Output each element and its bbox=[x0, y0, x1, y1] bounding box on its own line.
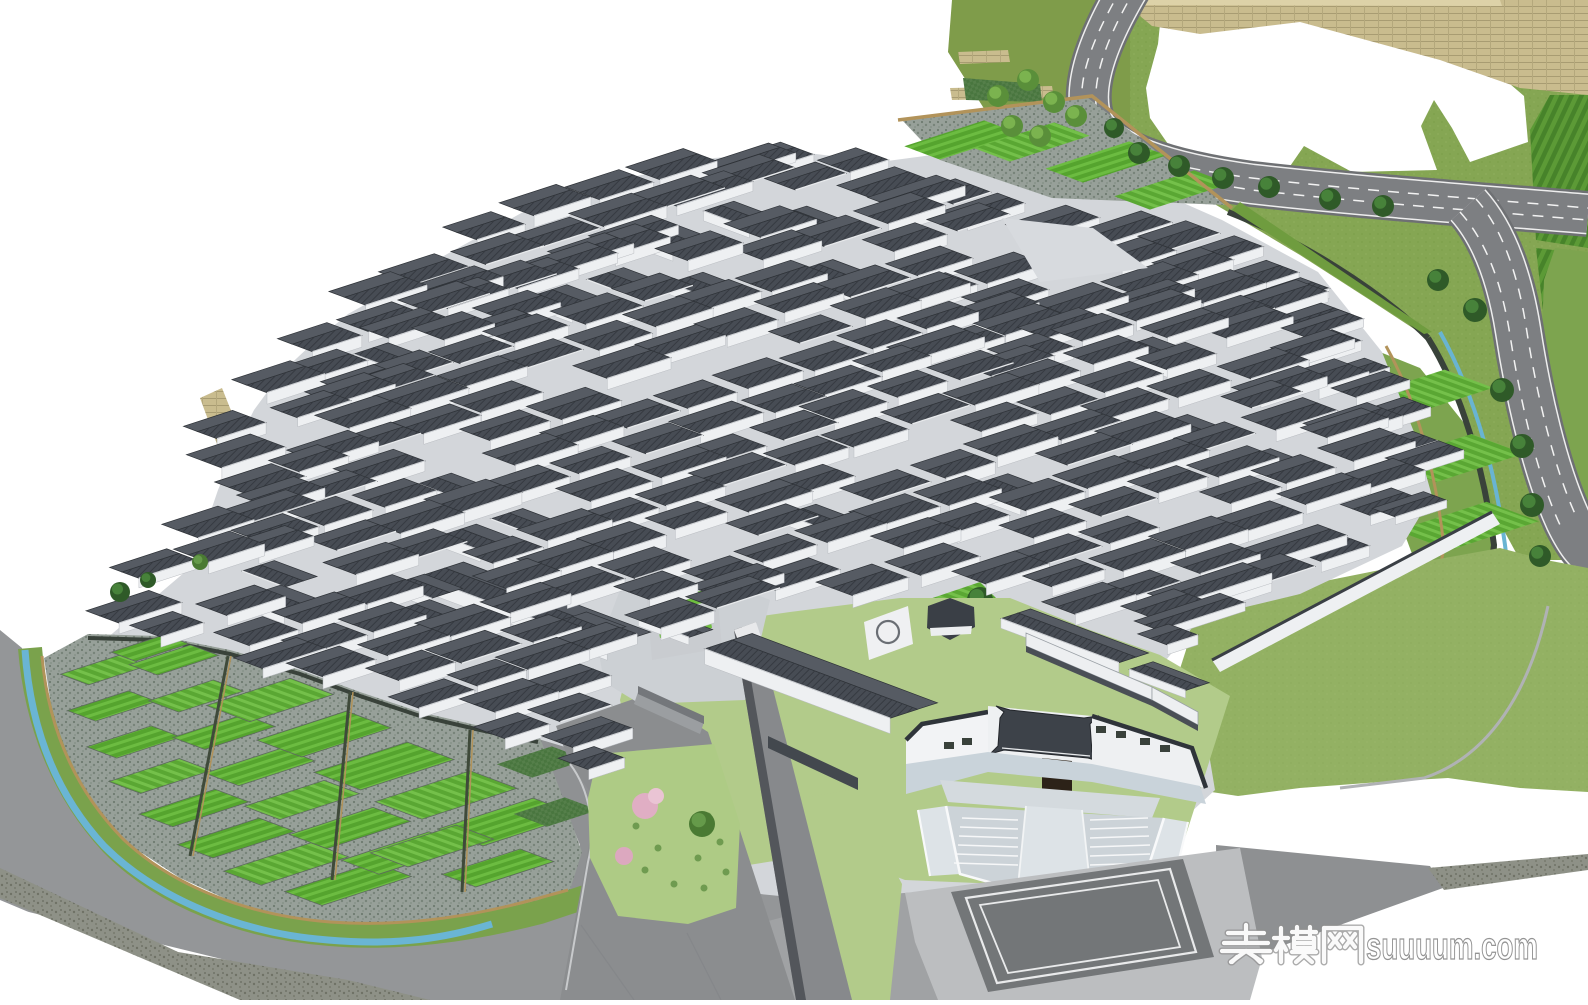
svg-text:suuuum.com: suuuum.com bbox=[1366, 926, 1538, 968]
